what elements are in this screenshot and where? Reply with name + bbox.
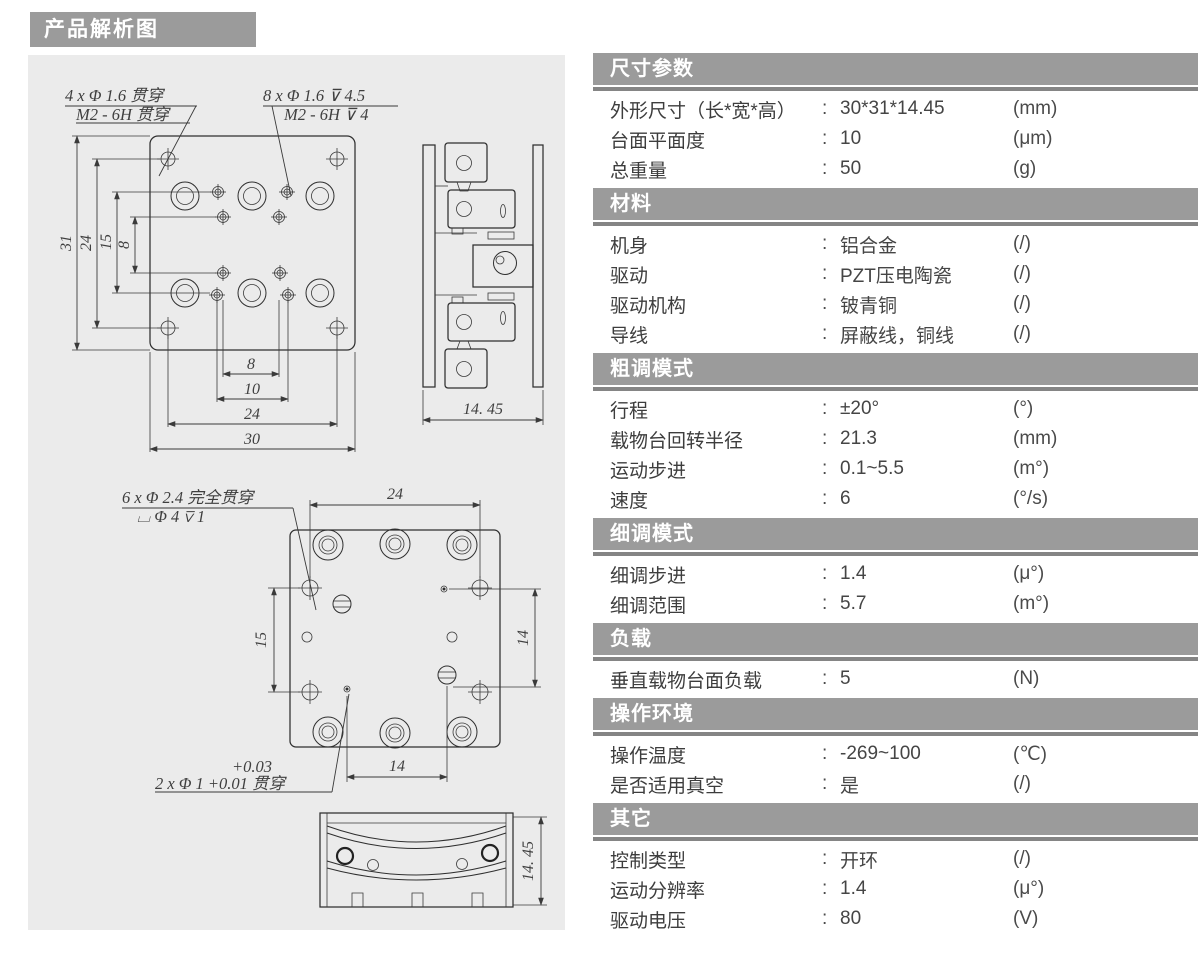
spec-unit: (m°) — [1013, 458, 1198, 480]
section-header: 细调模式 — [593, 518, 1198, 550]
spec-value: -269~100 — [840, 743, 1013, 765]
section-title: 负载 — [610, 628, 652, 650]
spec-row: 垂直载物台面负载:5(N) — [593, 664, 1198, 694]
spec-unit: (μ°) — [1013, 878, 1198, 900]
spec-unit: (/) — [1013, 848, 1198, 870]
callout-dowel-holes: +0.03 2 x Φ 1 +0.01 贯穿 — [155, 694, 349, 793]
spec-value: 5.7 — [840, 593, 1013, 615]
spec-section: 操作环境操作温度:-269~100(℃)是否适用真空:是(/) — [593, 698, 1198, 799]
spec-row: 台面平面度:10(μm) — [593, 124, 1198, 154]
spec-value: 30*31*14.45 — [840, 98, 1013, 120]
drawing-svg: 31 24 15 8 8 10 24 30 4 x Φ 1.6 贯穿 M2 - … — [0, 0, 598, 958]
spec-value: 6 — [840, 488, 1013, 510]
spec-unit: (mm) — [1013, 98, 1198, 120]
spec-label: 速度 — [593, 486, 822, 513]
spec-label: 控制类型 — [593, 846, 822, 873]
spec-row: 驱动:PZT压电陶瓷(/) — [593, 259, 1198, 289]
spec-unit: (μm) — [1013, 128, 1198, 150]
spec-unit: (/) — [1013, 263, 1198, 285]
spec-unit: (/) — [1013, 773, 1198, 795]
spec-value: 21.3 — [840, 428, 1013, 450]
small-hole-icon — [302, 632, 312, 642]
spec-unit: (mm) — [1013, 428, 1198, 450]
spec-row: 导线:屏蔽线，铜线(/) — [593, 319, 1198, 349]
spec-label: 是否适用真空 — [593, 771, 822, 798]
spec-label: 运动分辨率 — [593, 876, 822, 903]
spec-label: 载物台回转半径 — [593, 426, 822, 453]
flexure-arc — [327, 826, 506, 842]
spec-unit: (/) — [1013, 293, 1198, 315]
spec-unit: (m°) — [1013, 593, 1198, 615]
spec-row: 操作温度:-269~100(℃) — [593, 739, 1198, 769]
callout-through-holes: 4 x Φ 1.6 贯穿 M2 - 6H 贯穿 — [65, 86, 197, 176]
bottom-view-drawing: 24 15 14 14 6 x Φ 2.4 完全贯穿 ⌴ Φ 4 ⊽ 1 +0.… — [122, 486, 541, 793]
spec-label: 外形尺寸（长*宽*高） — [593, 96, 822, 123]
callout-counterbore: 6 x Φ 2.4 完全贯穿 ⌴ Φ 4 ⊽ 1 — [122, 488, 316, 610]
section-header: 操作环境 — [593, 698, 1198, 730]
section-divider — [593, 87, 1198, 91]
spec-section: 尺寸参数外形尺寸（长*宽*高）:30*31*14.45(mm)台面平面度:10(… — [593, 53, 1198, 184]
spec-row: 运动分辨率:1.4(μ°) — [593, 874, 1198, 904]
dim-label-24h: 24 — [244, 406, 260, 423]
spec-row: 细调步进:1.4(μ°) — [593, 559, 1198, 589]
spec-row: 载物台回转半径:21.3(mm) — [593, 424, 1198, 454]
spec-unit: (°/s) — [1013, 488, 1198, 510]
spec-colon: : — [822, 908, 840, 930]
section-header: 其它 — [593, 803, 1198, 835]
bearing-circle-icon — [313, 529, 477, 748]
callout-text: 6 x Φ 2.4 完全贯穿 — [122, 488, 256, 507]
dim-label-31: 31 — [58, 235, 75, 252]
dim-label-15v: 15 — [98, 234, 115, 250]
dim-label-height: 14. 45 — [520, 841, 537, 881]
small-hole-icon — [447, 632, 457, 642]
section-title: 操作环境 — [610, 703, 694, 725]
spec-section: 细调模式细调步进:1.4(μ°)细调范围:5.7(m°) — [593, 518, 1198, 619]
spec-label: 细调范围 — [593, 591, 822, 618]
spec-value: 铍青铜 — [840, 291, 1013, 318]
spec-row: 驱动机构:铍青铜(/) — [593, 289, 1198, 319]
spec-value: PZT压电陶瓷 — [840, 261, 1013, 288]
spec-unit: (V) — [1013, 908, 1198, 930]
flexure-arc — [327, 861, 506, 875]
callout-tapped-holes: 8 x Φ 1.6 ⊽ 4.5 M2 - 6H ⊽ 4 — [263, 86, 398, 196]
side-view-drawing: 14. 45 — [423, 143, 543, 425]
spec-row: 控制类型:开环(/) — [593, 844, 1198, 874]
spec-value: 10 — [840, 128, 1013, 150]
spec-row: 机身:铝合金(/) — [593, 229, 1198, 259]
spec-label: 驱动 — [593, 261, 822, 288]
spec-section: 粗调模式行程:±20°(°)载物台回转半径:21.3(mm)运动步进:0.1~5… — [593, 353, 1198, 514]
dim-label-24: 24 — [387, 486, 403, 503]
spec-colon: : — [822, 398, 840, 420]
spec-label: 细调步进 — [593, 561, 822, 588]
dim-label-8h: 8 — [247, 356, 255, 373]
slotted-screw-icon — [333, 595, 456, 684]
spec-colon: : — [822, 848, 840, 870]
spec-colon: : — [822, 158, 840, 180]
spec-row: 行程:±20°(°) — [593, 394, 1198, 424]
spec-value: 0.1~5.5 — [840, 458, 1013, 480]
section-title: 其它 — [610, 808, 652, 830]
spec-label: 驱动机构 — [593, 291, 822, 318]
spec-label: 台面平面度 — [593, 126, 822, 153]
spec-label: 垂直载物台面负载 — [593, 666, 822, 693]
spec-row: 外形尺寸（长*宽*高）:30*31*14.45(mm) — [593, 94, 1198, 124]
spec-colon: : — [822, 773, 840, 795]
spec-colon: : — [822, 668, 840, 690]
spec-label: 导线 — [593, 321, 822, 348]
spec-value: 5 — [840, 668, 1013, 690]
hole-icon — [482, 845, 498, 861]
dim-label-30: 30 — [243, 431, 260, 448]
spec-unit: (μ°) — [1013, 563, 1198, 585]
spec-colon: : — [822, 293, 840, 315]
spec-colon: : — [822, 428, 840, 450]
spec-colon: : — [822, 743, 840, 765]
callout-text: 2 x Φ 1 +0.01 贯穿 — [155, 774, 288, 793]
dim-label-14r: 14 — [515, 630, 532, 646]
screw-hole-icon — [209, 184, 296, 303]
spec-colon: : — [822, 563, 840, 585]
section-header: 材料 — [593, 188, 1198, 220]
spec-label: 行程 — [593, 396, 822, 423]
spec-colon: : — [822, 323, 840, 345]
section-header: 粗调模式 — [593, 353, 1198, 385]
dim-label-depth: 14. 45 — [463, 401, 503, 418]
hole-icon — [457, 859, 468, 870]
callout-text: 8 x Φ 1.6 ⊽ 4.5 — [263, 86, 365, 105]
dim-label-10h: 10 — [244, 381, 260, 398]
hole-icon — [368, 860, 379, 871]
spec-colon: : — [822, 233, 840, 255]
spec-value: 1.4 — [840, 563, 1013, 585]
spec-label: 操作温度 — [593, 741, 822, 768]
dim-label-15: 15 — [253, 632, 270, 648]
section-title: 细调模式 — [610, 523, 694, 545]
spec-label: 运动步进 — [593, 456, 822, 483]
spec-sections: 尺寸参数外形尺寸（长*宽*高）:30*31*14.45(mm)台面平面度:10(… — [593, 53, 1198, 934]
top-view-drawing: 31 24 15 8 8 10 24 30 4 x Φ 1.6 贯穿 M2 - … — [58, 86, 398, 452]
spec-section: 负载垂直载物台面负载:5(N) — [593, 623, 1198, 694]
dowel-pin-hole-icon — [344, 586, 447, 692]
section-divider — [593, 387, 1198, 391]
section-divider — [593, 732, 1198, 736]
extension-lines — [150, 300, 355, 452]
spec-panel: 尺寸参数外形尺寸（长*宽*高）:30*31*14.45(mm)台面平面度:10(… — [593, 53, 1198, 938]
spec-row: 是否适用真空:是(/) — [593, 769, 1198, 799]
section-divider — [593, 837, 1198, 841]
counterbore-hole-icon — [298, 576, 492, 704]
dim-label-8v: 8 — [116, 241, 133, 249]
hole-icon — [337, 848, 353, 864]
dim-label-24v: 24 — [78, 235, 95, 251]
spec-colon: : — [822, 98, 840, 120]
dim-label-14b: 14 — [389, 758, 405, 775]
spec-label: 总重量 — [593, 156, 822, 183]
spec-row: 运动步进:0.1~5.5(m°) — [593, 454, 1198, 484]
callout-text: 4 x Φ 1.6 贯穿 — [65, 86, 166, 105]
spec-value: 50 — [840, 158, 1013, 180]
spec-value: 80 — [840, 908, 1013, 930]
front-view-drawing: 14. 45 — [320, 813, 547, 907]
callout-text: M2 - 6H ⊽ 4 — [283, 105, 368, 124]
spec-colon: : — [822, 593, 840, 615]
flexure-arc — [327, 868, 506, 880]
spec-value: 是 — [840, 771, 1013, 798]
section-divider — [593, 552, 1198, 556]
spec-value: 开环 — [840, 846, 1013, 873]
section-title: 材料 — [610, 193, 652, 215]
spec-colon: : — [822, 263, 840, 285]
section-divider — [593, 222, 1198, 226]
spec-unit: (/) — [1013, 323, 1198, 345]
section-title: 粗调模式 — [610, 358, 694, 380]
spec-section: 其它控制类型:开环(/)运动分辨率:1.4(μ°)驱动电压:80(V) — [593, 803, 1198, 934]
flexure-arc — [327, 833, 506, 849]
section-divider — [593, 657, 1198, 661]
spec-label: 机身 — [593, 231, 822, 258]
spec-row: 速度:6(°/s) — [593, 484, 1198, 514]
spec-colon: : — [822, 878, 840, 900]
spec-value: 铝合金 — [840, 231, 1013, 258]
spec-colon: : — [822, 488, 840, 510]
spec-unit: (℃) — [1013, 743, 1198, 766]
spec-row: 总重量:50(g) — [593, 154, 1198, 184]
spec-colon: : — [822, 128, 840, 150]
corner-hole-icon — [157, 148, 348, 339]
section-header: 负载 — [593, 623, 1198, 655]
section-header: 尺寸参数 — [593, 53, 1198, 85]
spec-row: 驱动电压:80(V) — [593, 904, 1198, 934]
spec-unit: (g) — [1013, 158, 1198, 180]
spec-unit: (/) — [1013, 233, 1198, 255]
spec-row: 细调范围:5.7(m°) — [593, 589, 1198, 619]
callout-text: ⌴ Φ 4 ⊽ 1 — [137, 507, 205, 526]
spec-value: ±20° — [840, 398, 1013, 420]
spec-label: 驱动电压 — [593, 906, 822, 933]
section-title: 尺寸参数 — [610, 58, 694, 80]
spec-value: 屏蔽线，铜线 — [840, 321, 1013, 348]
callout-text: M2 - 6H 贯穿 — [75, 105, 172, 124]
spec-section: 材料机身:铝合金(/)驱动:PZT压电陶瓷(/)驱动机构:铍青铜(/)导线:屏蔽… — [593, 188, 1198, 349]
spec-unit: (N) — [1013, 668, 1198, 690]
bearing-circle-icon — [171, 182, 334, 307]
spec-value: 1.4 — [840, 878, 1013, 900]
spec-colon: : — [822, 458, 840, 480]
spec-unit: (°) — [1013, 398, 1198, 420]
